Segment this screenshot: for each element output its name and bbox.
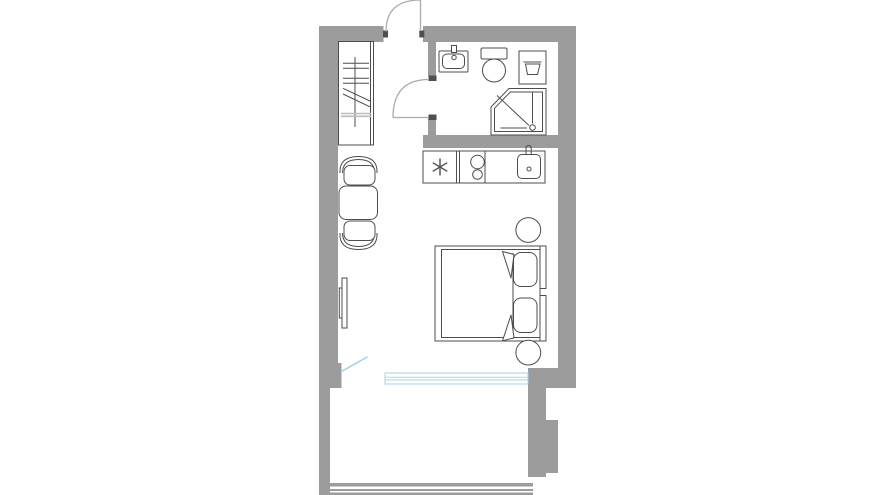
headboard-top <box>540 246 546 289</box>
pillow-bottom <box>514 298 538 333</box>
headboard-bottom <box>540 296 546 342</box>
bathroom-sink-faucet <box>452 46 457 53</box>
wardrobe-diagonal-2 <box>343 94 371 107</box>
bath-kitchen-wall <box>423 135 558 148</box>
nightstand-bottom <box>516 340 541 365</box>
hall-bath-divider-bottom <box>428 119 436 135</box>
entry-jamb-left <box>383 31 388 38</box>
balcony-right-outer-wall <box>546 420 558 473</box>
railing-bar-1 <box>329 483 533 487</box>
bath-jamb-top <box>429 76 437 82</box>
bathroom-sink-basin <box>443 54 465 69</box>
wardrobe-light-shelves <box>341 114 371 117</box>
kitchen <box>423 145 545 183</box>
toilet-bowl <box>483 59 506 82</box>
balcony-glazing <box>341 357 528 384</box>
chair-bottom-seat <box>344 221 375 241</box>
dining-area <box>339 157 378 250</box>
wall-tv <box>339 278 347 328</box>
bath-jamb-bottom <box>429 115 437 121</box>
right-balcony-pier <box>528 368 558 388</box>
toilet-tank <box>481 48 507 59</box>
left-wall <box>319 26 338 388</box>
left-balcony-pier <box>319 363 342 388</box>
kitchen-sink <box>518 145 541 178</box>
nightstand-top <box>516 218 541 243</box>
dining-chair-bottom <box>340 221 377 250</box>
washing-machine-outline <box>519 51 546 84</box>
pillow-top <box>514 253 538 287</box>
dining-chair-top <box>340 157 377 186</box>
wardrobe <box>339 42 374 146</box>
toilet <box>481 48 507 82</box>
right-wall <box>558 26 576 388</box>
chair-top-seat <box>344 166 375 186</box>
wardrobe-diagonal-1 <box>343 88 371 101</box>
tv-screen <box>342 278 347 328</box>
shower <box>491 89 546 136</box>
railing-bar-2 <box>329 489 533 491</box>
hall-bath-divider-top <box>428 42 436 76</box>
bathroom-door-arc <box>393 80 429 118</box>
wardrobe-outline <box>339 42 374 146</box>
dining-table <box>339 186 378 220</box>
bathroom-sink <box>439 46 468 73</box>
entry-jamb-right <box>419 31 424 38</box>
bed-area <box>435 218 546 365</box>
bathroom-fixtures <box>439 46 546 136</box>
balcony-door-swing <box>341 357 368 372</box>
balcony-right-wall <box>528 388 546 477</box>
balcony-left-wall <box>319 388 330 495</box>
washing-machine <box>519 51 546 84</box>
top-wall-right <box>423 26 576 42</box>
floor-plan <box>0 0 880 495</box>
floor-plan-drawing <box>0 0 880 495</box>
window-band <box>385 373 528 384</box>
doors <box>386 0 429 118</box>
entry-door-arc <box>386 0 421 32</box>
